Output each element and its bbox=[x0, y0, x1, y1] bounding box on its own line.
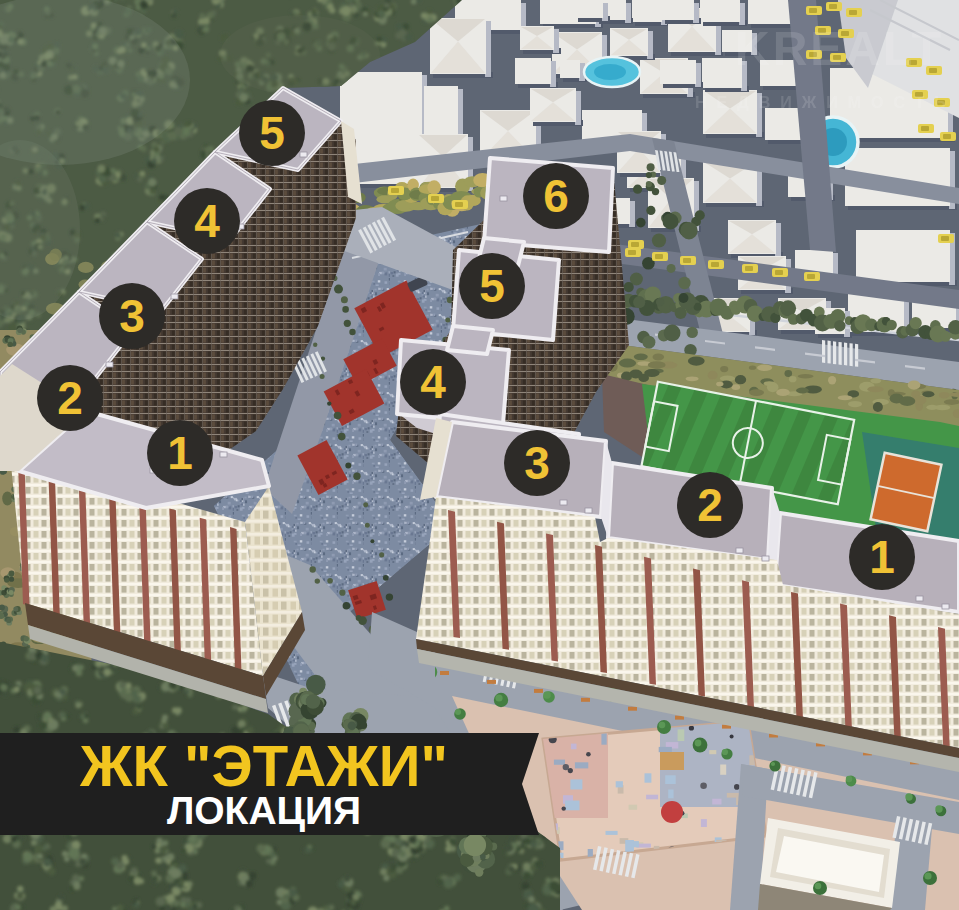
svg-text:2: 2 bbox=[697, 479, 723, 531]
svg-text:1: 1 bbox=[869, 531, 895, 583]
svg-text:KREALT: KREALT bbox=[735, 22, 944, 75]
svg-text:2: 2 bbox=[57, 372, 83, 424]
svg-text:НЕДВИЖИМОСТЬ: НЕДВИЖИМОСТЬ bbox=[695, 94, 956, 111]
svg-text:5: 5 bbox=[479, 260, 505, 312]
svg-text:5: 5 bbox=[259, 107, 285, 159]
svg-text:4: 4 bbox=[420, 356, 446, 408]
svg-text:3: 3 bbox=[119, 290, 145, 342]
svg-text:4: 4 bbox=[194, 195, 220, 247]
svg-text:ЛОКАЦИЯ: ЛОКАЦИЯ bbox=[167, 789, 361, 832]
svg-text:1: 1 bbox=[167, 427, 193, 479]
svg-text:3: 3 bbox=[524, 437, 550, 489]
svg-text:6: 6 bbox=[543, 170, 569, 222]
